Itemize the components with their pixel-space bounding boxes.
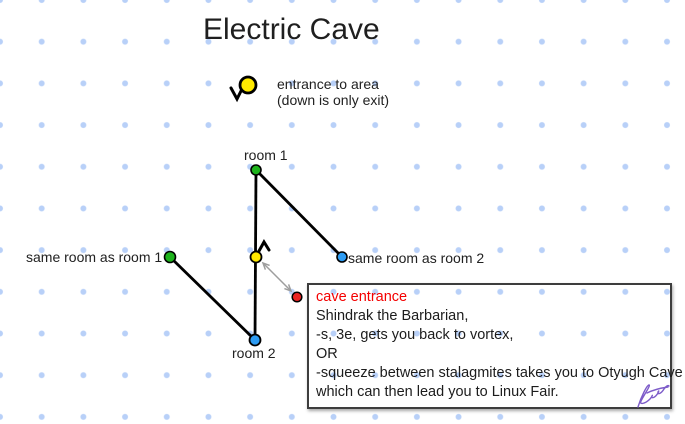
node-vortex-entrance [251,252,262,263]
double-headed-arrow-icon [263,263,291,291]
node-room1 [251,165,261,175]
room1-label: room 1 [244,147,288,163]
drawing-canvas: Electric Cave entrance to area (down is … [0,0,685,424]
signature-strokes [638,385,669,407]
same-room-as-room1-label: same room as room 1 [26,249,162,265]
note-line: Shindrak the Barbarian, [316,307,663,326]
node-cave-entrance [292,292,302,302]
edge-sameroom1-room2 [170,257,255,340]
legend-entrance-node [240,77,256,93]
signature-scribble [633,379,673,411]
note-line: OR [316,345,663,364]
node-same-room-as-room1 [165,252,176,263]
node-room2 [250,335,261,346]
note-line: -s, 3e, gets you back to vortex, [316,326,663,345]
note-heading: cave entrance [316,288,663,307]
note-line: -squeeze between stalagmites takes you t… [316,364,663,383]
note-line: which can then lead you to Linux Fair. [316,383,663,402]
note-box: cave entrance Shindrak the Barbarian, -s… [307,283,672,409]
node-same-room-as-room2 [337,252,347,262]
edge-room1-sameroom2 [256,170,342,257]
up-chevron-icon [259,242,269,251]
same-room-as-room2-label: same room as room 2 [348,250,484,266]
room2-label: room 2 [232,345,276,361]
